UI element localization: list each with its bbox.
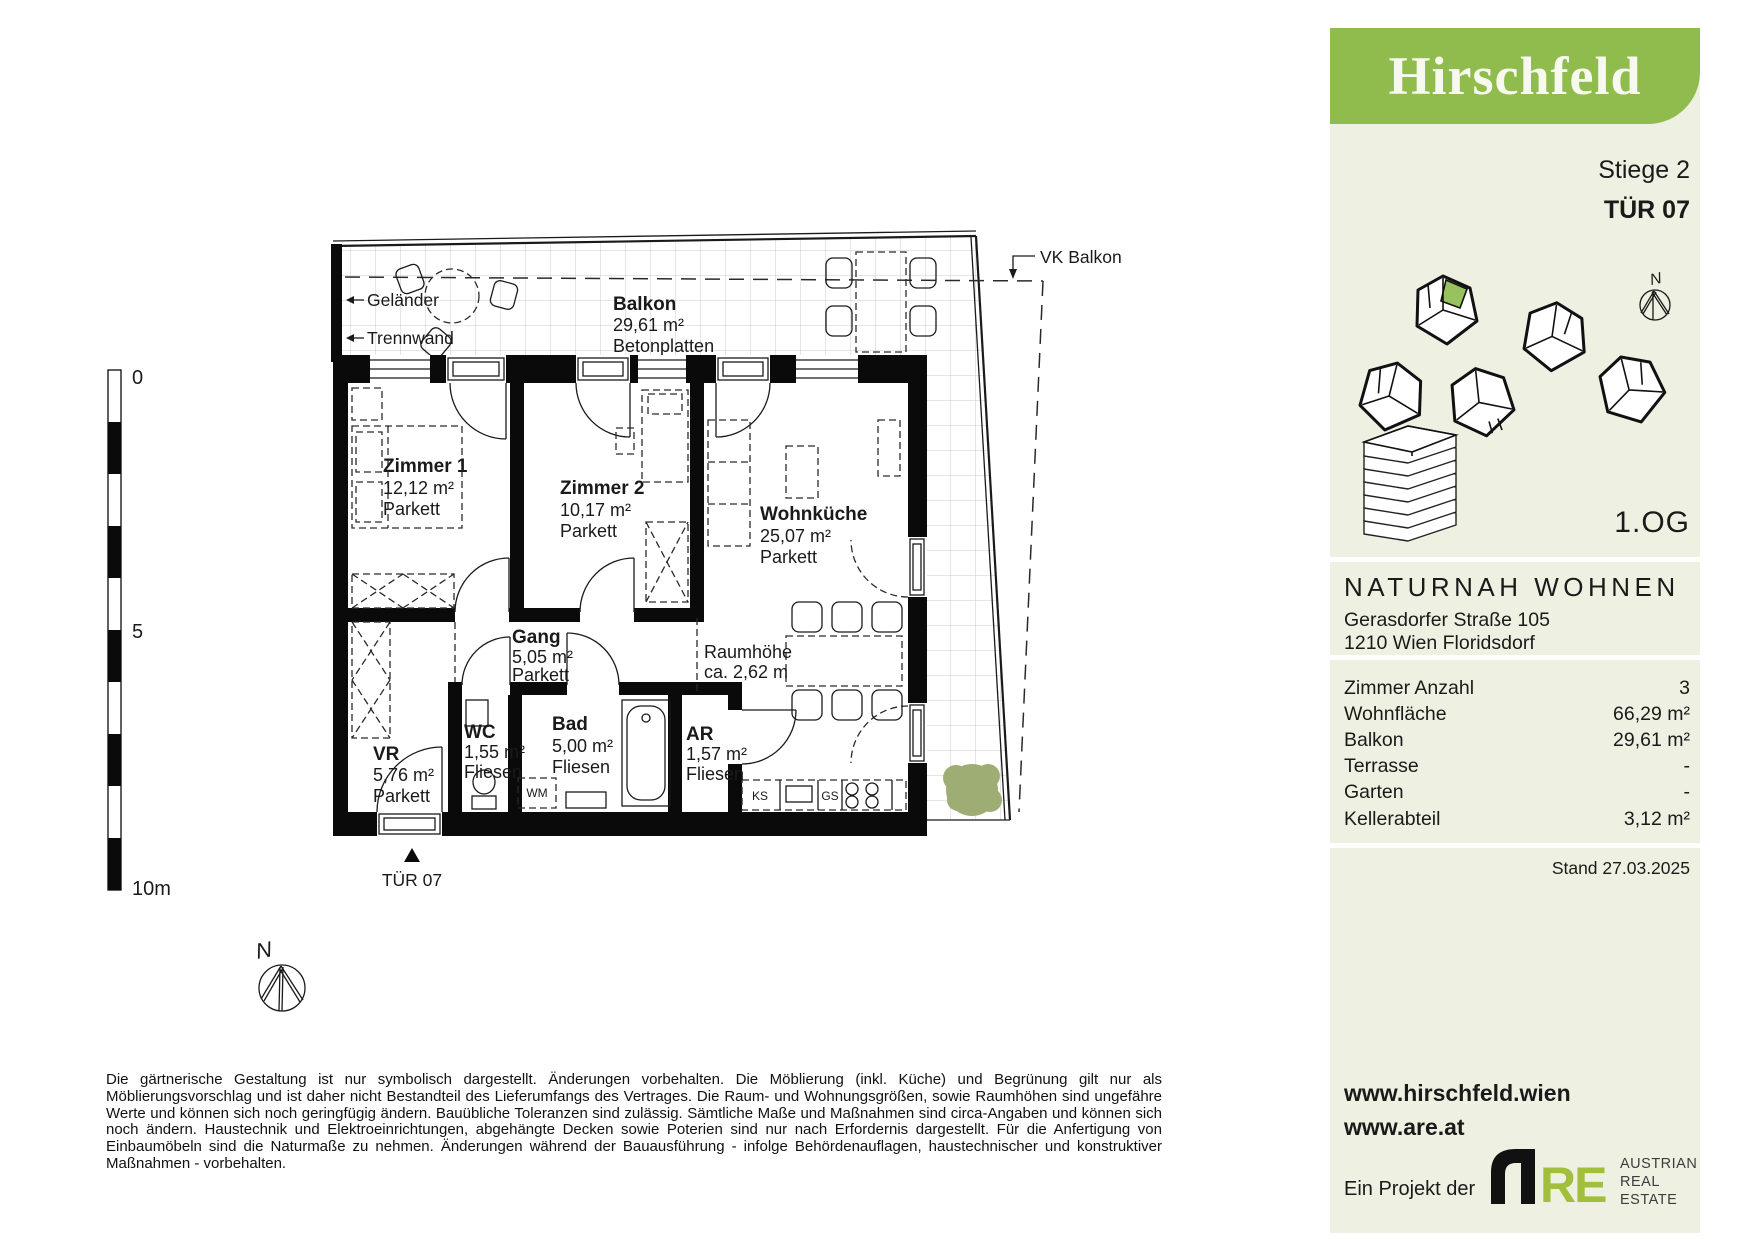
svg-text:AUSTRIAN: AUSTRIAN <box>1620 1156 1697 1172</box>
svg-text:Balkon: Balkon <box>613 294 676 315</box>
svg-text:Fliesen: Fliesen <box>686 764 744 784</box>
svg-text:5,05 m²: 5,05 m² <box>512 647 573 667</box>
are-logo-re: RE <box>1540 1157 1606 1208</box>
stand-date: Stand 27.03.2025 <box>1552 858 1690 879</box>
sidebar-north-compass: N <box>1640 270 1670 320</box>
building-footprint-5 <box>1596 349 1671 429</box>
washing-machine-label: WM <box>526 786 547 800</box>
room-label-bad: Bad 5,00 m² Fliesen <box>552 714 613 777</box>
fact-row-kellerabteil: Kellerabteil 3,12 m² <box>1330 806 1700 832</box>
svg-text:VR: VR <box>373 744 400 765</box>
fact-row-zimmer: Zimmer Anzahl 3 <box>1330 675 1700 701</box>
stiege-label: Stiege 2 <box>1598 156 1690 185</box>
dishwasher-label: GS <box>821 789 838 803</box>
svg-text:10m: 10m <box>132 878 171 900</box>
svg-text:Parkett: Parkett <box>383 499 440 519</box>
svg-text:Bad: Bad <box>552 714 588 735</box>
svg-text:10,17 m²: 10,17 m² <box>560 500 631 520</box>
floor-label: 1.OG <box>1614 506 1690 540</box>
entry-marker <box>404 848 420 862</box>
svg-text:0: 0 <box>132 367 143 389</box>
svg-text:25,07 m²: 25,07 m² <box>760 526 831 546</box>
svg-text:Betonplatten: Betonplatten <box>613 336 714 356</box>
room-label-gang: Gang 5,05 m² Parkett <box>512 627 573 685</box>
building-footprint-3 <box>1356 357 1431 437</box>
svg-text:ESTATE: ESTATE <box>1620 1192 1677 1208</box>
svg-text:REAL: REAL <box>1620 1174 1660 1190</box>
fact-row-balkon: Balkon 29,61 m² <box>1330 727 1700 753</box>
svg-text:Fliesen: Fliesen <box>464 762 522 782</box>
fridge-label: KS <box>752 789 768 803</box>
fact-row-garten: Garten - <box>1330 780 1700 806</box>
svg-text:Parkett: Parkett <box>560 521 617 541</box>
floor-plan-drawing: VK Balkon Geländer Trennwand Balkon <box>0 0 1160 1020</box>
address-line-2: 1210 Wien Floridsdorf <box>1330 632 1700 655</box>
info-sidebar: Hirschfeld Stiege 2 TÜR 07 N <box>1330 0 1700 1240</box>
building-footprint-highlighted <box>1417 276 1477 344</box>
svg-text:Zimmer 1: Zimmer 1 <box>383 456 468 477</box>
address-line-1: Gerasdorfer Straße 105 <box>1330 603 1700 632</box>
facts-section: Zimmer Anzahl 3 Wohnfläche 66,29 m² Balk… <box>1330 660 1700 843</box>
svg-text:Fliesen: Fliesen <box>552 757 610 777</box>
svg-text:ca. 2,62 m: ca. 2,62 m <box>704 662 788 682</box>
svg-text:Raumhöhe: Raumhöhe <box>704 642 792 662</box>
room-label-zimmer-2: Zimmer 2 10,17 m² Parkett <box>560 478 644 541</box>
fact-row-wohnflaeche: Wohnfläche 66,29 m² <box>1330 701 1700 727</box>
trennwand-label: Trennwand <box>367 328 454 348</box>
floorplan-datasheet: VK Balkon Geländer Trennwand Balkon <box>0 0 1753 1240</box>
svg-text:Gang: Gang <box>512 627 561 648</box>
tree <box>943 764 1002 816</box>
svg-text:Zimmer 2: Zimmer 2 <box>560 478 644 499</box>
svg-text:AR: AR <box>686 724 714 745</box>
isometric-building <box>1364 426 1456 541</box>
svg-text:5,00 m²: 5,00 m² <box>552 736 613 756</box>
are-logo: RE AUSTRIAN REAL ESTATE <box>1488 1144 1700 1208</box>
disclaimer-text: Die gärtnerische Gestaltung ist nur symb… <box>106 1072 1162 1173</box>
tuer-label: TÜR 07 <box>1604 196 1690 225</box>
svg-text:Parkett: Parkett <box>512 665 569 685</box>
north-compass: N <box>254 936 305 1011</box>
project-name: NATURNAH WOHNEN <box>1330 562 1700 603</box>
svg-text:Parkett: Parkett <box>373 786 430 806</box>
sidebar-north-label: N <box>1648 270 1663 289</box>
svg-text:5: 5 <box>132 621 143 643</box>
room-label-vr: VR 5,76 m² Parkett <box>373 744 434 806</box>
room-height-label: Raumhöhe ca. 2,62 m <box>704 642 792 682</box>
room-label-wohnkueche: Wohnküche 25,07 m² Parkett <box>760 504 867 567</box>
sidebar-top-section: Hirschfeld Stiege 2 TÜR 07 N <box>1330 28 1700 557</box>
fact-row-terrasse: Terrasse - <box>1330 754 1700 780</box>
footer-section: Stand 27.03.2025 www.hirschfeld.wien www… <box>1330 848 1700 1233</box>
svg-text:1,57 m²: 1,57 m² <box>686 744 747 764</box>
svg-text:WC: WC <box>464 722 496 743</box>
website-hirschfeld[interactable]: www.hirschfeld.wien <box>1344 1080 1571 1107</box>
building-footprint-4 <box>1450 365 1517 439</box>
are-logo-arch-icon <box>1491 1149 1535 1204</box>
entry-door-label: TÜR 07 <box>382 870 442 890</box>
svg-text:1,55 m²: 1,55 m² <box>464 742 525 762</box>
building-footprint-2 <box>1522 299 1591 375</box>
vk-balkon-label: VK Balkon <box>1040 247 1122 267</box>
svg-text:Wohnküche: Wohnküche <box>760 504 867 525</box>
svg-text:5,76 m²: 5,76 m² <box>373 765 434 785</box>
scale-bar: 0 5 10m <box>108 367 171 900</box>
svg-text:Parkett: Parkett <box>760 547 817 567</box>
project-by-label: Ein Projekt der <box>1344 1178 1475 1201</box>
facts-table: Zimmer Anzahl 3 Wohnfläche 66,29 m² Balk… <box>1330 660 1700 832</box>
logo-text: Hirschfeld <box>1389 45 1642 107</box>
hirschfeld-logo: Hirschfeld <box>1330 28 1700 124</box>
room-label-zimmer-1: Zimmer 1 12,12 m² Parkett <box>383 456 468 519</box>
project-section: NATURNAH WOHNEN Gerasdorfer Straße 105 1… <box>1330 562 1700 655</box>
svg-text:12,12 m²: 12,12 m² <box>383 478 454 498</box>
north-label: N <box>254 936 274 963</box>
svg-text:29,61 m²: 29,61 m² <box>613 315 684 335</box>
website-are[interactable]: www.are.at <box>1344 1114 1465 1141</box>
